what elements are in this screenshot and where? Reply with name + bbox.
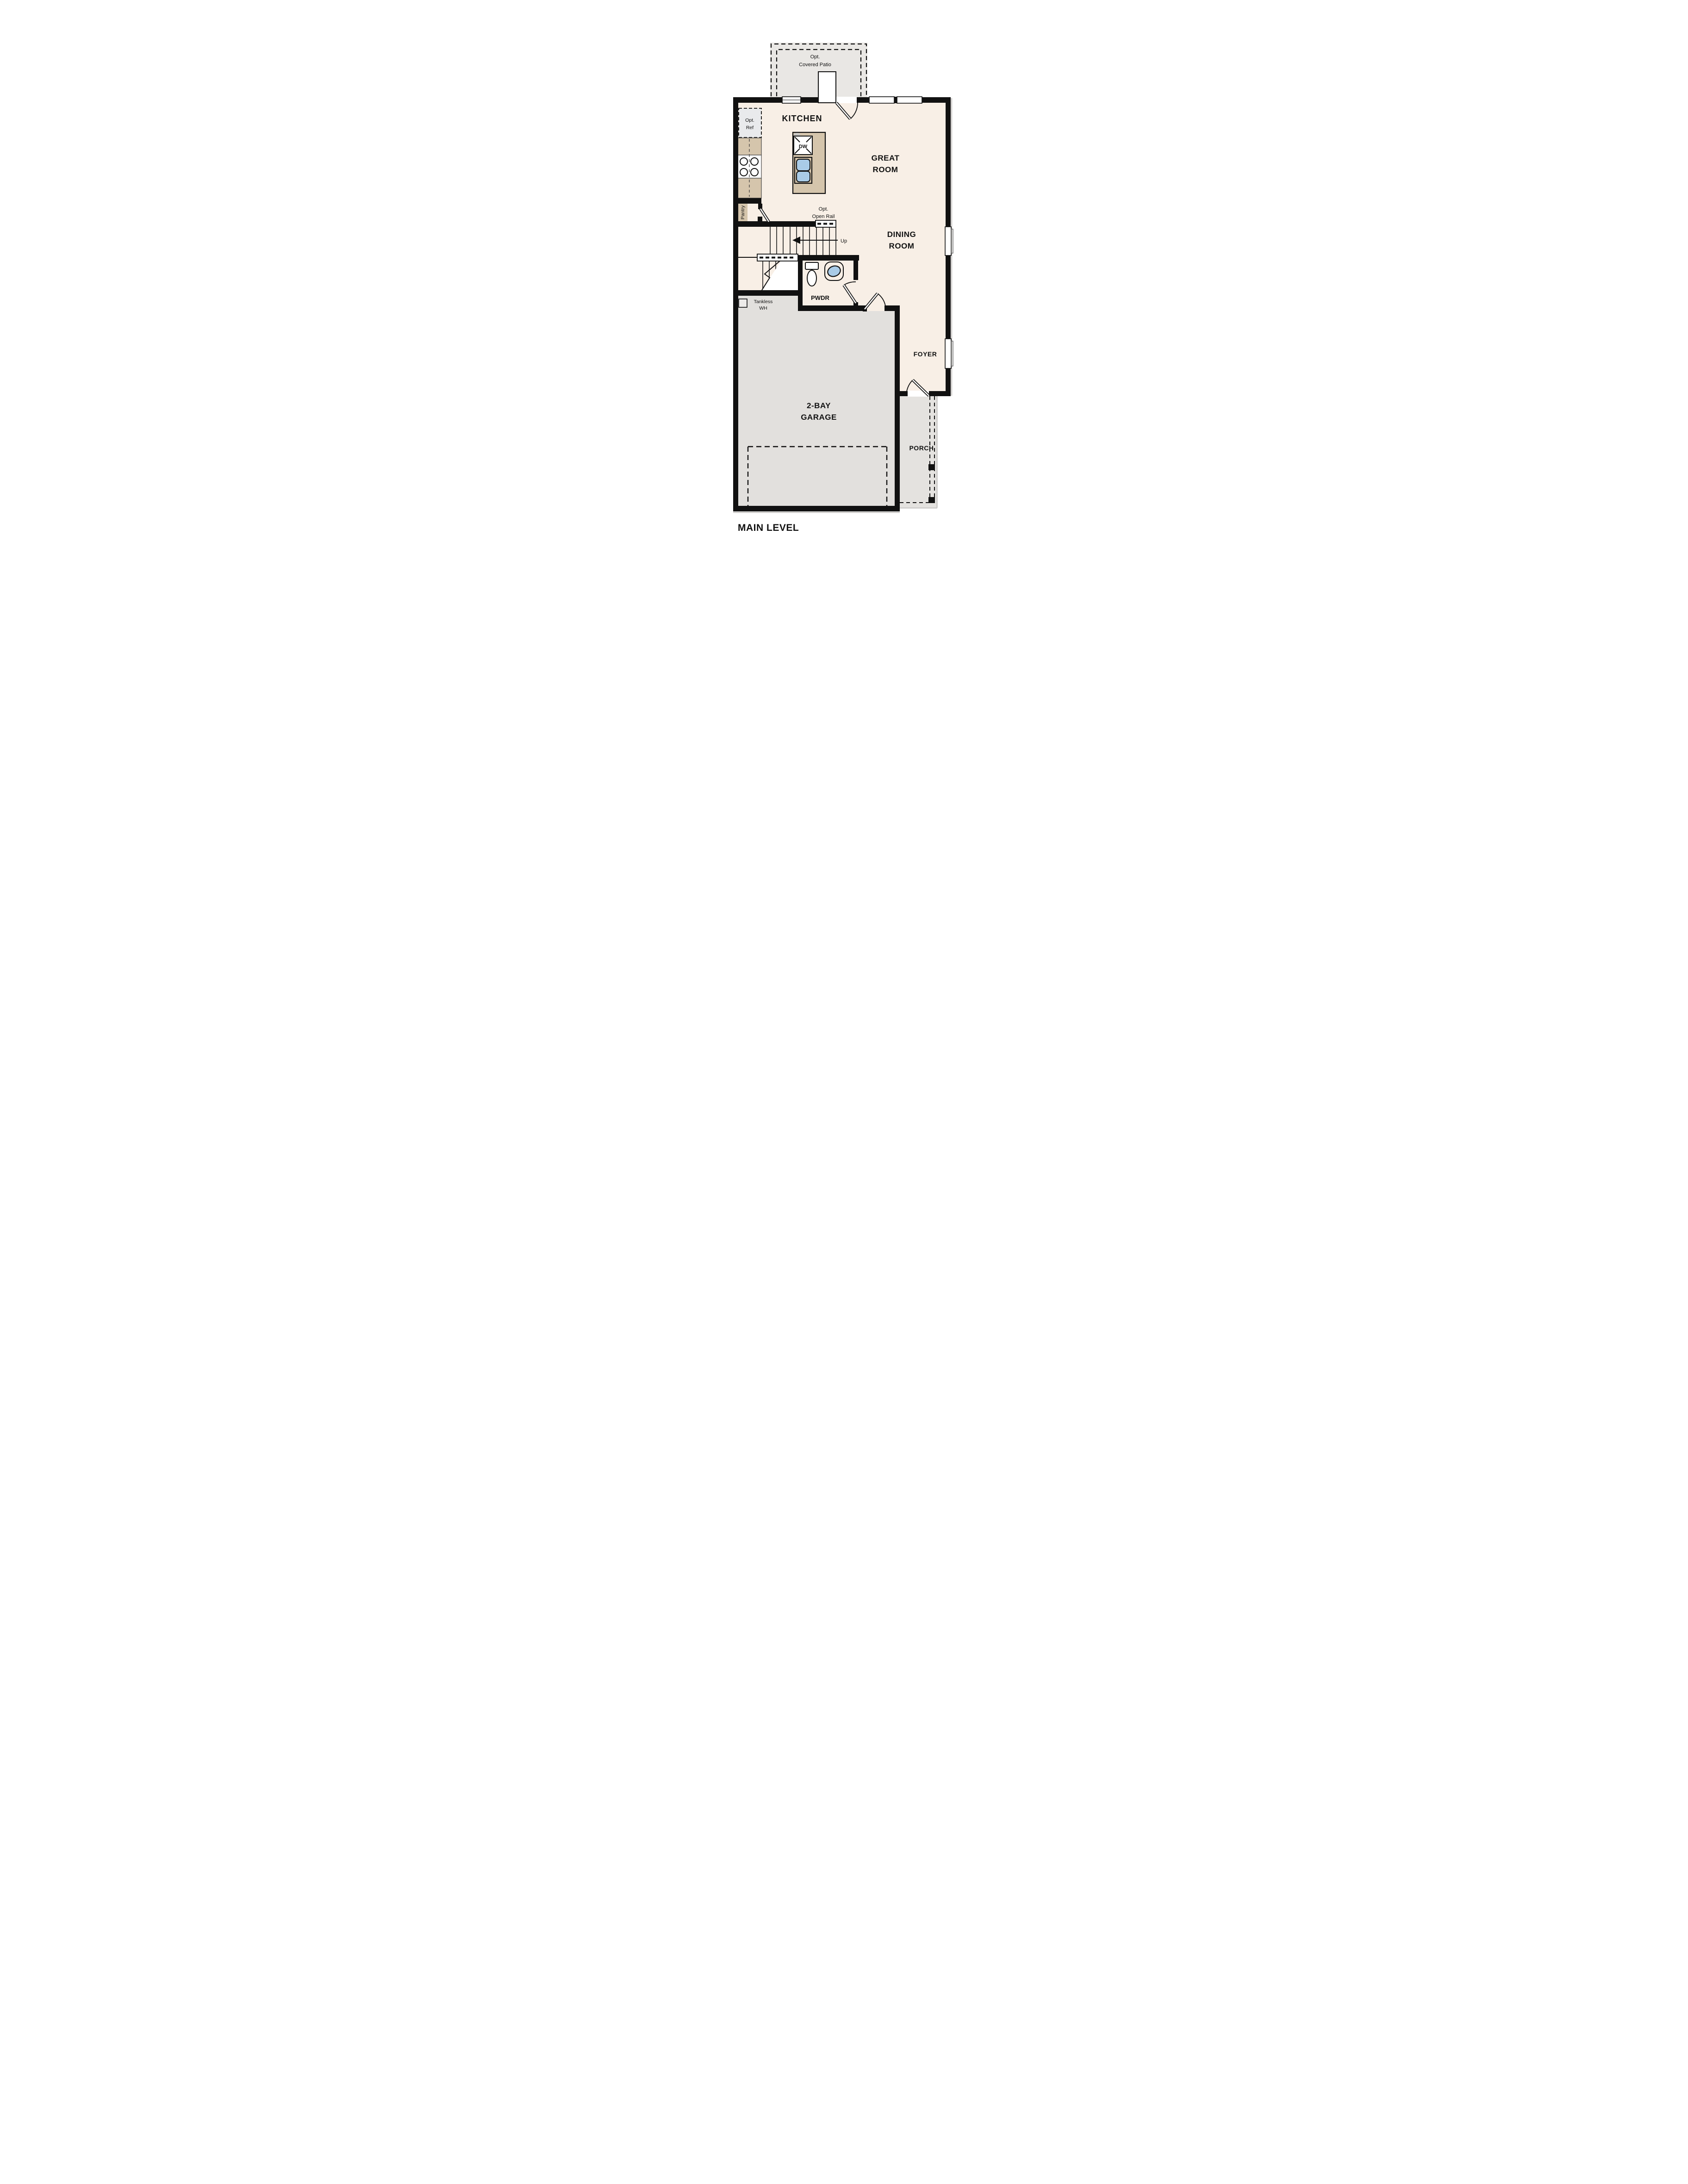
tankless-water-heater (739, 299, 747, 307)
porch-post-mid (928, 464, 935, 470)
patio-label-line2: Covered Patio (799, 62, 831, 68)
patio-label-line1: Opt. (810, 54, 820, 60)
porch-floor (900, 396, 937, 507)
main-level-title: MAIN LEVEL (738, 523, 799, 533)
pwdr-label: PWDR (811, 294, 829, 301)
burner-icon (740, 158, 747, 165)
pantry-label: Pantry (740, 205, 746, 219)
window-dining (945, 227, 951, 255)
opening-patio-door (836, 97, 857, 103)
wall-garage-bottom (733, 506, 900, 511)
garage-label-line1: 2-BAY (807, 401, 831, 410)
wall-garage-right (895, 305, 900, 511)
burner-icon (751, 168, 758, 176)
toilet-bowl (807, 270, 816, 286)
toilet-tank (805, 262, 818, 269)
window-mullion-post (894, 97, 897, 103)
window-great-room-1 (869, 97, 894, 103)
dining-room-label-line2: ROOM (889, 242, 914, 250)
garage-label-line2: GARAGE (801, 413, 837, 422)
great-room-label-line1: GREAT (871, 154, 899, 162)
window-foyer (945, 339, 951, 368)
burner-icon (751, 158, 758, 165)
wall-pwdr-left (798, 255, 803, 311)
kitchen-island (793, 132, 825, 193)
tankless-wh-label-line2: WH (759, 305, 767, 311)
burner-icon (740, 168, 747, 176)
open-rail-label-line2: Open Rail (812, 214, 835, 219)
kitchen-label: KITCHEN (782, 114, 822, 123)
wall-stair-kitchen-divider (737, 221, 816, 227)
wall-pwdr-bottom (798, 305, 866, 311)
dishwasher-label: DW (798, 144, 807, 149)
patio-stoop (818, 72, 836, 103)
porch-post-corner (928, 497, 935, 503)
sink-basin-2 (797, 171, 810, 182)
foyer-label: FOYER (913, 350, 937, 358)
floor-plan-page: Opt. Covered Patio KITCHEN Opt. Ref DW P… (563, 0, 1126, 728)
wall-pantry-jamb-bottom (758, 217, 762, 223)
opt-ref-label-line2: Ref (746, 125, 753, 131)
dining-room-label-line1: DINING (887, 230, 916, 239)
great-room-label-line2: ROOM (872, 165, 898, 174)
up-label: Up (841, 238, 847, 244)
wall-foyer-top (884, 305, 895, 311)
wall-exterior-left (733, 97, 738, 511)
floor-plan-main-level: Opt. Covered Patio KITCHEN Opt. Ref DW P… (563, 0, 1126, 728)
wall-understair (733, 290, 803, 296)
window-great-room-2 (897, 97, 922, 103)
porch-label: PORCH (909, 444, 934, 452)
wall-pwdr-top (798, 255, 859, 261)
opt-ref-label-line1: Opt. (745, 118, 754, 123)
wall-pantry-top (736, 198, 761, 204)
porch (900, 396, 937, 508)
wall-pwdr-right (853, 261, 858, 280)
garage-floor (738, 296, 895, 506)
open-rail-label-line1: Opt. (818, 206, 828, 212)
sink-basin-1 (797, 159, 810, 171)
tankless-wh-label-line1: Tankless (754, 299, 772, 305)
